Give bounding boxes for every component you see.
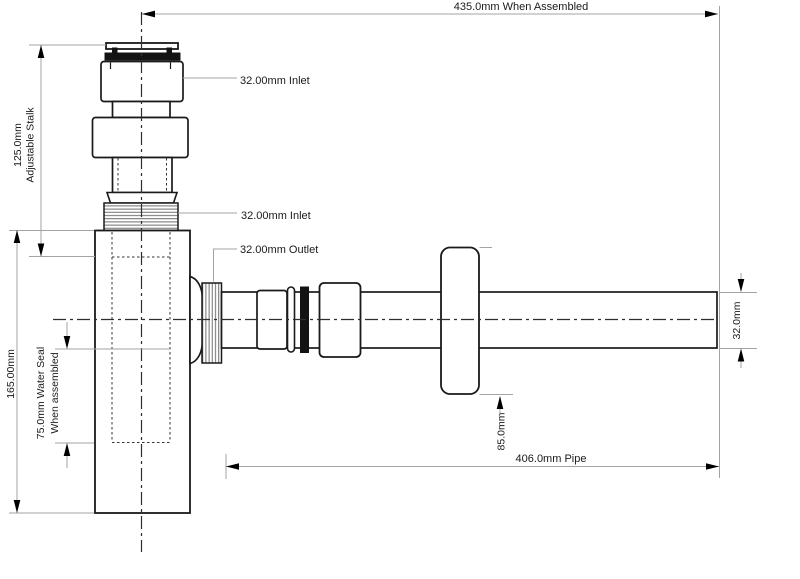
label-water-seal-line1: 75.0mm Water Seal	[35, 347, 47, 439]
label-stalk-value: 125.0mm	[12, 123, 24, 167]
label-flange-diameter: 85.0mm	[496, 412, 508, 450]
arrow-dia-bottom	[738, 349, 745, 362]
arrow-stalk-top	[38, 45, 45, 58]
label-pipe-length: 406.0mm Pipe	[516, 453, 587, 465]
arrow-flange	[497, 396, 504, 409]
label-assembled-width: 435.0mm When Assembled	[454, 1, 589, 13]
technical-drawing-canvas: 435.0mm When Assembled 32.00mm Inlet 32.…	[0, 0, 800, 579]
lower-nut	[93, 118, 189, 158]
arrow-height-bottom	[14, 500, 21, 513]
leader-outlet	[214, 249, 238, 282]
arrow-dia-top	[738, 279, 745, 292]
arrow-seal-top	[64, 336, 71, 349]
trap-body	[95, 231, 190, 514]
wall-flange	[441, 248, 479, 395]
arrow-stalk-bottom	[38, 244, 45, 257]
label-stalk-caption: Adjustable Stalk	[25, 107, 37, 183]
trap-assembly	[93, 43, 718, 513]
arrow-assembled-right	[705, 11, 718, 18]
label-outlet: 32.00mm Outlet	[240, 244, 318, 256]
label-pipe-diameter: 32.0mm	[731, 301, 743, 339]
label-inlet-top: 32.00mm Inlet	[240, 75, 310, 87]
arrow-height-top	[14, 230, 21, 243]
label-inlet-lower: 32.00mm Inlet	[241, 210, 311, 222]
drawing-svg: 435.0mm When Assembled 32.00mm Inlet 32.…	[0, 0, 800, 579]
arrow-pipe-left	[226, 463, 239, 470]
stalk-tube	[113, 158, 173, 193]
label-water-seal-line2: When assembled	[49, 352, 61, 433]
arrow-seal-bottom	[64, 443, 71, 456]
arrow-assembled-left	[142, 11, 155, 18]
arrow-pipe-right	[706, 463, 719, 470]
outlet-thread-section	[202, 283, 222, 363]
label-body-height: 165.00mm	[5, 349, 17, 399]
cap-seal-ring	[105, 53, 181, 61]
